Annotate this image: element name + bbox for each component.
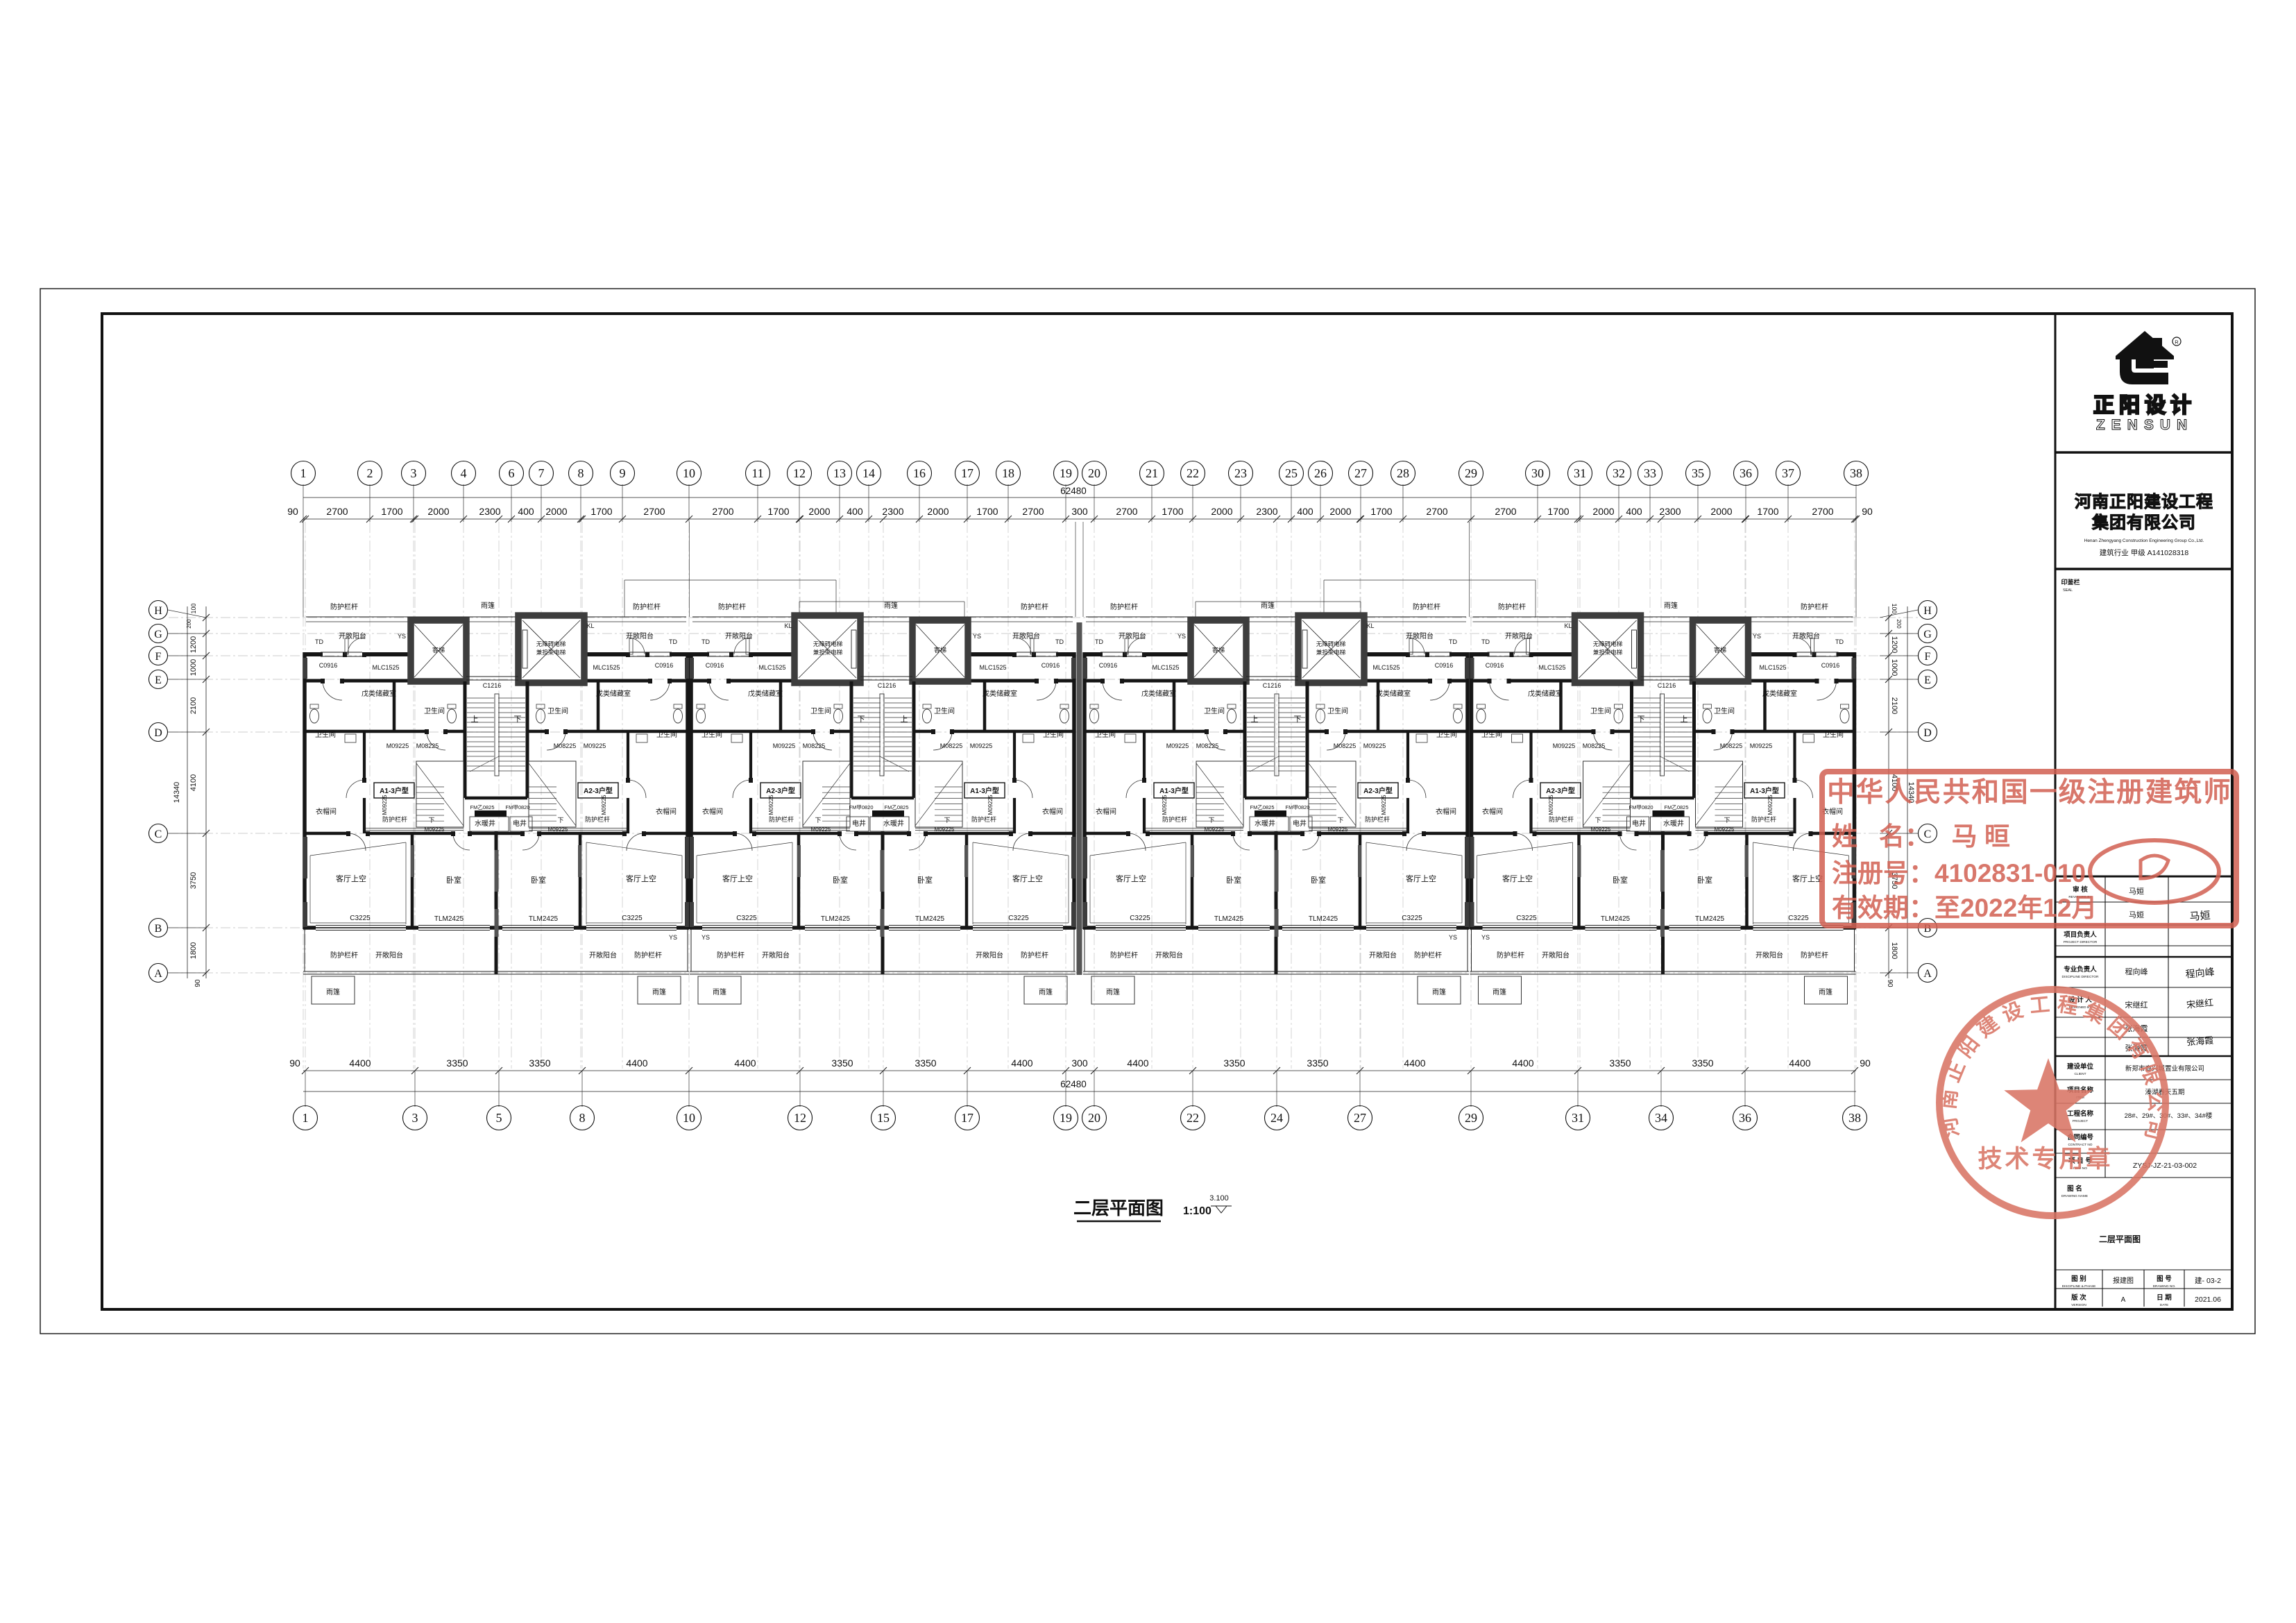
svg-text:35: 35	[1692, 466, 1704, 480]
svg-text:9: 9	[620, 466, 626, 480]
svg-text:4400: 4400	[734, 1057, 756, 1069]
svg-text:3350: 3350	[529, 1057, 550, 1069]
svg-text:水暖井: 水暖井	[1255, 819, 1275, 828]
svg-text:下: 下	[944, 817, 950, 824]
svg-text:32: 32	[1613, 466, 1625, 480]
svg-text:工程名称: 工程名称	[2067, 1110, 2094, 1118]
svg-text:卧室: 卧室	[1311, 875, 1326, 885]
svg-text:雨篷: 雨篷	[652, 987, 666, 996]
svg-text:ZENSUN: ZENSUN	[2096, 417, 2193, 433]
svg-text:兼担架电梯: 兼担架电梯	[536, 649, 566, 656]
svg-text:C3225: C3225	[1130, 915, 1150, 922]
svg-text:1700: 1700	[590, 506, 612, 517]
svg-text:8: 8	[578, 466, 584, 480]
svg-text:YS: YS	[701, 934, 710, 941]
svg-text:2: 2	[367, 466, 373, 480]
svg-text:下: 下	[1337, 817, 1343, 824]
svg-text:MLC1525: MLC1525	[758, 664, 785, 671]
svg-text:1000: 1000	[189, 659, 198, 676]
svg-text:有效期：至2022年12月: 有效期：至2022年12月	[1832, 894, 2097, 922]
svg-text:1000: 1000	[1890, 659, 1898, 676]
svg-text:TLM2425: TLM2425	[915, 915, 945, 923]
svg-text:62480: 62480	[1060, 1079, 1087, 1089]
svg-text:M09225: M09225	[1767, 794, 1774, 815]
svg-text:FM甲0820: FM甲0820	[505, 804, 529, 810]
svg-text:C0916: C0916	[1435, 662, 1454, 669]
svg-text:无障碍电梯: 无障碍电梯	[813, 640, 843, 647]
svg-text:2700: 2700	[1426, 506, 1447, 517]
svg-text:18: 18	[1002, 466, 1014, 480]
svg-text:防护栏杆: 防护栏杆	[1110, 602, 1138, 611]
svg-text:F: F	[155, 651, 162, 663]
svg-text:C3225: C3225	[1402, 915, 1422, 922]
svg-text:4400: 4400	[349, 1057, 371, 1069]
svg-text:2000: 2000	[1710, 506, 1732, 517]
svg-text:技术专用章: 技术专用章	[1978, 1145, 2113, 1173]
svg-text:4400: 4400	[1789, 1057, 1810, 1069]
svg-text:1700: 1700	[1757, 506, 1778, 517]
svg-text:M09225: M09225	[811, 826, 831, 833]
svg-text:A2-3户型: A2-3户型	[1363, 786, 1393, 795]
svg-text:卧室: 卧室	[917, 875, 933, 885]
svg-text:Henan Zhengyang Construction E: Henan Zhengyang Construction Engineering…	[2084, 538, 2204, 543]
svg-text:M09225: M09225	[425, 826, 445, 833]
svg-text:衣帽间: 衣帽间	[1822, 807, 1843, 816]
svg-text:防护栏杆: 防护栏杆	[769, 815, 794, 823]
svg-text:卫生间: 卫生间	[656, 730, 677, 739]
svg-text:衣帽间: 衣帽间	[1096, 807, 1116, 816]
svg-text:M09225: M09225	[601, 794, 607, 815]
svg-text:5: 5	[496, 1111, 502, 1125]
svg-text:2000: 2000	[427, 506, 449, 517]
svg-text:62480: 62480	[1060, 486, 1087, 496]
svg-text:防护栏杆: 防护栏杆	[1497, 951, 1524, 960]
svg-text:22: 22	[1187, 466, 1199, 480]
svg-text:M09225: M09225	[970, 742, 993, 749]
svg-text:防护栏杆: 防护栏杆	[585, 815, 610, 823]
svg-text:戊类储藏室: 戊类储藏室	[596, 689, 631, 698]
svg-text:M09225: M09225	[548, 826, 568, 833]
svg-text:2700: 2700	[1022, 506, 1044, 517]
svg-text:2300: 2300	[1256, 506, 1277, 517]
svg-text:卫生间: 卫生间	[934, 706, 955, 715]
svg-text:TD: TD	[669, 638, 677, 645]
svg-text:图 号: 图 号	[2157, 1275, 2172, 1283]
svg-text:C3225: C3225	[736, 915, 757, 922]
svg-text:客厅上空: 客厅上空	[626, 874, 656, 883]
svg-text:雨篷: 雨篷	[884, 601, 898, 610]
svg-text:400: 400	[1626, 506, 1642, 517]
svg-text:电井: 电井	[513, 819, 527, 828]
svg-text:开敞阳台: 开敞阳台	[1369, 951, 1397, 960]
svg-text:防护栏杆: 防护栏杆	[330, 951, 358, 960]
svg-text:25: 25	[1285, 466, 1298, 480]
svg-text:开敞阳台: 开敞阳台	[1755, 951, 1783, 960]
svg-text:FM乙0825: FM乙0825	[1664, 804, 1688, 810]
svg-text:12: 12	[794, 1111, 806, 1125]
svg-text:防护栏杆: 防护栏杆	[1801, 602, 1828, 611]
svg-text:22: 22	[1187, 1111, 1199, 1125]
svg-text:21: 21	[1146, 466, 1158, 480]
svg-text:R: R	[2175, 339, 2179, 346]
svg-text:1200: 1200	[189, 636, 198, 653]
svg-text:38: 38	[1850, 466, 1862, 480]
svg-text:8: 8	[579, 1111, 586, 1125]
svg-text:客厅上空: 客厅上空	[1792, 874, 1823, 883]
svg-text:3750: 3750	[189, 872, 198, 889]
svg-text:1200: 1200	[1890, 636, 1898, 653]
svg-text:卫生间: 卫生间	[1043, 730, 1064, 739]
svg-text:图 名: 图 名	[2067, 1184, 2082, 1193]
svg-text:36: 36	[1739, 1111, 1751, 1125]
svg-text:M09225: M09225	[1166, 742, 1189, 749]
svg-text:MLC1525: MLC1525	[593, 664, 620, 671]
svg-text:FM甲0820: FM甲0820	[1285, 804, 1309, 810]
svg-text:1700: 1700	[767, 506, 789, 517]
svg-text:YS: YS	[1449, 934, 1457, 941]
svg-text:C3225: C3225	[350, 915, 371, 922]
svg-text:90: 90	[289, 1057, 300, 1069]
svg-text:2300: 2300	[882, 506, 903, 517]
svg-text:防护栏杆: 防护栏杆	[634, 951, 662, 960]
svg-text:下: 下	[1208, 817, 1214, 824]
svg-text:雨篷: 雨篷	[481, 601, 495, 610]
svg-text:开敞阳台: 开敞阳台	[976, 951, 1003, 960]
svg-text:TD: TD	[1095, 638, 1103, 645]
svg-text:FM甲0820: FM甲0820	[1629, 804, 1653, 810]
svg-text:M08225: M08225	[940, 742, 963, 749]
svg-text:SEAL: SEAL	[2063, 588, 2073, 593]
svg-text:程向峰: 程向峰	[2125, 967, 2148, 976]
svg-text:KL: KL	[1564, 622, 1572, 629]
svg-text:开敞阳台: 开敞阳台	[626, 631, 654, 640]
svg-text:C0916: C0916	[1099, 662, 1118, 669]
svg-text:C3225: C3225	[1788, 915, 1809, 922]
svg-text:开敞阳台: 开敞阳台	[762, 951, 790, 960]
svg-text:报建图: 报建图	[2113, 1276, 2134, 1285]
svg-text:雨篷: 雨篷	[1664, 601, 1678, 610]
svg-text:27: 27	[1354, 1111, 1366, 1125]
svg-text:雨篷: 雨篷	[1106, 987, 1120, 996]
svg-text:戊类储藏室: 戊类储藏室	[748, 689, 783, 698]
svg-text:M09225: M09225	[1591, 826, 1611, 833]
svg-text:衣帽间: 衣帽间	[316, 807, 337, 816]
svg-text:36: 36	[1740, 466, 1752, 480]
svg-text:卫生间: 卫生间	[1204, 706, 1225, 715]
svg-text:23: 23	[1234, 466, 1247, 480]
svg-text:27: 27	[1354, 466, 1367, 480]
svg-text:TLM2425: TLM2425	[1214, 915, 1244, 923]
svg-text:雨篷: 雨篷	[1432, 987, 1446, 996]
svg-text:G: G	[154, 629, 162, 640]
svg-text:A1-3户型: A1-3户型	[1750, 786, 1779, 795]
svg-text:M09225: M09225	[1363, 742, 1386, 749]
svg-text:90: 90	[287, 506, 298, 517]
svg-text:开敞阳台: 开敞阳台	[375, 951, 403, 960]
svg-text:2700: 2700	[712, 506, 733, 517]
svg-text:衣帽间: 衣帽间	[1042, 807, 1063, 816]
svg-text:电井: 电井	[1632, 819, 1646, 828]
svg-text:兼担架电梯: 兼担架电梯	[813, 649, 843, 656]
svg-text:M09225: M09225	[768, 794, 774, 815]
svg-text:4400: 4400	[626, 1057, 647, 1069]
svg-text:DATE: DATE	[2160, 1303, 2168, 1307]
svg-text:衣帽间: 衣帽间	[656, 807, 677, 816]
svg-text:二层平面图: 二层平面图	[1073, 1198, 1164, 1218]
svg-text:下: 下	[1638, 715, 1645, 724]
svg-text:3350: 3350	[915, 1057, 936, 1069]
svg-text:1700: 1700	[1162, 506, 1183, 517]
svg-text:2300: 2300	[479, 506, 500, 517]
svg-text:防护栏杆: 防护栏杆	[718, 602, 746, 611]
svg-text:TD: TD	[315, 638, 323, 645]
svg-text:兼担架电梯: 兼担架电梯	[1316, 649, 1346, 656]
svg-text:D: D	[1923, 727, 1932, 739]
svg-text:卫生间: 卫生间	[1095, 730, 1116, 739]
svg-text:开敞阳台: 开敞阳台	[1155, 951, 1183, 960]
svg-text:TD: TD	[1449, 638, 1457, 645]
svg-text:90: 90	[194, 979, 202, 987]
svg-text:卧室: 卧室	[1613, 875, 1628, 885]
svg-text:M09225: M09225	[935, 826, 955, 833]
svg-text:M09225: M09225	[386, 742, 409, 749]
svg-text:防护栏杆: 防护栏杆	[1021, 951, 1048, 960]
svg-text:卫生间: 卫生间	[810, 706, 831, 715]
svg-text:TD: TD	[1055, 638, 1064, 645]
svg-text:3: 3	[411, 466, 417, 480]
svg-text:开敞阳台: 开敞阳台	[1012, 631, 1040, 640]
svg-text:1: 1	[300, 466, 307, 480]
svg-text:戊类储藏室: 戊类储藏室	[1376, 689, 1411, 698]
svg-text:1700: 1700	[1547, 506, 1569, 517]
svg-text:开敞阳台: 开敞阳台	[589, 951, 617, 960]
svg-text:C1216: C1216	[483, 682, 502, 689]
svg-text:A2-3户型: A2-3户型	[584, 786, 613, 795]
svg-text:A1-3户型: A1-3户型	[1159, 786, 1189, 795]
svg-text:防护栏杆: 防护栏杆	[1162, 815, 1187, 823]
svg-text:版 次: 版 次	[2070, 1293, 2086, 1302]
svg-text:开敞阳台: 开敞阳台	[1542, 951, 1570, 960]
svg-text:3350: 3350	[1609, 1057, 1631, 1069]
svg-text:2700: 2700	[1495, 506, 1516, 517]
svg-text:M09225: M09225	[1381, 794, 1387, 815]
svg-text:M09225: M09225	[1548, 794, 1554, 815]
svg-text:防护栏杆: 防护栏杆	[1751, 815, 1776, 823]
svg-text:正阳设计: 正阳设计	[2093, 394, 2196, 417]
svg-text:马姮: 马姮	[2129, 910, 2144, 919]
svg-text:雨篷: 雨篷	[1261, 601, 1275, 610]
svg-text:客梯: 客梯	[934, 646, 946, 654]
svg-text:2700: 2700	[643, 506, 665, 517]
svg-text:防护栏杆: 防护栏杆	[330, 602, 358, 611]
svg-text:TLM2425: TLM2425	[529, 915, 559, 923]
svg-text:TD: TD	[1481, 638, 1490, 645]
svg-text:FM乙0825: FM乙0825	[884, 804, 908, 810]
svg-text:防护栏杆: 防护栏杆	[1365, 815, 1390, 823]
svg-text:客厅上空: 客厅上空	[722, 874, 753, 883]
svg-text:19: 19	[1060, 466, 1072, 480]
svg-text:M09225: M09225	[987, 794, 994, 815]
svg-text:15: 15	[877, 1111, 890, 1125]
svg-text:M09225: M09225	[382, 794, 388, 815]
svg-text:MLC1525: MLC1525	[372, 664, 399, 671]
svg-text:防护栏杆: 防护栏杆	[1110, 951, 1138, 960]
svg-text:1800: 1800	[189, 942, 198, 959]
svg-text:PROJECT DIRECTOR: PROJECT DIRECTOR	[2064, 940, 2098, 944]
svg-text:2000: 2000	[1592, 506, 1614, 517]
svg-text:建- 03-2: 建- 03-2	[2195, 1276, 2221, 1285]
svg-text:无障碍电梯: 无障碍电梯	[1316, 640, 1346, 647]
svg-text:宋继红: 宋继红	[2125, 1000, 2148, 1010]
svg-text:3350: 3350	[831, 1057, 853, 1069]
svg-text:卫生间: 卫生间	[315, 730, 336, 739]
svg-text:E: E	[155, 674, 162, 686]
svg-text:C3225: C3225	[622, 915, 643, 922]
svg-text:开敞阳台: 开敞阳台	[725, 631, 753, 640]
svg-text:H: H	[1923, 605, 1932, 617]
svg-text:M09225: M09225	[1328, 826, 1348, 833]
svg-text:客梯: 客梯	[1714, 646, 1726, 654]
svg-text:上: 上	[471, 715, 479, 724]
svg-text:雨篷: 雨篷	[713, 987, 726, 996]
svg-text:A1-3户型: A1-3户型	[970, 786, 999, 795]
svg-text:戊类储藏室: 戊类储藏室	[1528, 689, 1563, 698]
svg-text:4400: 4400	[1404, 1057, 1425, 1069]
svg-text:PROJECT: PROJECT	[2073, 1119, 2088, 1123]
svg-text:11: 11	[751, 466, 763, 480]
svg-text:兼担架电梯: 兼担架电梯	[1593, 649, 1623, 656]
svg-text:YS: YS	[973, 633, 981, 640]
svg-text:20: 20	[1088, 466, 1100, 480]
svg-text:10: 10	[683, 466, 695, 480]
svg-text:C0916: C0916	[655, 662, 674, 669]
svg-text:17: 17	[961, 1111, 973, 1125]
svg-text:下: 下	[815, 817, 821, 824]
svg-text:卧室: 卧室	[833, 875, 848, 885]
svg-text:A1-3户型: A1-3户型	[380, 786, 409, 795]
svg-text:4400: 4400	[1011, 1057, 1032, 1069]
svg-text:卫生间: 卫生间	[701, 730, 722, 739]
svg-text:戊类储藏室: 戊类储藏室	[983, 689, 1017, 698]
svg-text:戊类储藏室: 戊类储藏室	[362, 689, 396, 698]
svg-text:C0916: C0916	[706, 662, 724, 669]
svg-text:TLM2425: TLM2425	[1695, 915, 1725, 923]
svg-text:TLM2425: TLM2425	[1309, 915, 1338, 923]
svg-text:M09225: M09225	[773, 742, 796, 749]
svg-text:FM乙0825: FM乙0825	[470, 804, 494, 810]
svg-text:M08225: M08225	[1583, 742, 1606, 749]
svg-text:2700: 2700	[326, 506, 348, 517]
svg-text:卫生间: 卫生间	[1823, 730, 1844, 739]
svg-text:A: A	[154, 968, 162, 980]
svg-text:B: B	[155, 923, 162, 935]
svg-text:M08225: M08225	[1196, 742, 1219, 749]
svg-text:1700: 1700	[976, 506, 998, 517]
svg-text:H: H	[154, 605, 162, 617]
svg-text:防护栏杆: 防护栏杆	[717, 951, 745, 960]
svg-text:400: 400	[518, 506, 534, 517]
svg-text:水暖井: 水暖井	[475, 819, 495, 828]
svg-text:上: 上	[901, 715, 908, 724]
svg-text:A2-3户型: A2-3户型	[1546, 786, 1575, 795]
svg-text:3350: 3350	[1307, 1057, 1328, 1069]
svg-text:19: 19	[1060, 1111, 1072, 1125]
svg-text:日 期: 日 期	[2157, 1293, 2172, 1302]
svg-text:客厅上空: 客厅上空	[1502, 874, 1533, 883]
svg-text:专业负责人: 专业负责人	[2064, 965, 2097, 974]
svg-text:13: 13	[833, 466, 846, 480]
svg-text:YS: YS	[1753, 633, 1761, 640]
svg-text:MLC1525: MLC1525	[1152, 664, 1179, 671]
svg-text:卫生间: 卫生间	[547, 706, 568, 715]
svg-text:M08225: M08225	[1720, 742, 1743, 749]
svg-text:A: A	[1923, 968, 1932, 980]
svg-text:VERSION: VERSION	[2071, 1303, 2086, 1307]
svg-text:1800: 1800	[1890, 942, 1898, 959]
svg-text:34: 34	[1655, 1111, 1667, 1125]
svg-text:28: 28	[1397, 466, 1409, 480]
svg-text:二层平面图: 二层平面图	[2099, 1234, 2141, 1244]
svg-text:C: C	[155, 829, 162, 840]
svg-text:10: 10	[683, 1111, 695, 1125]
svg-text:C1216: C1216	[1263, 682, 1282, 689]
svg-text:戊类储藏室: 戊类储藏室	[1141, 689, 1176, 698]
svg-text:下: 下	[557, 817, 563, 824]
svg-text:100: 100	[1891, 603, 1898, 613]
svg-text:4400: 4400	[1127, 1057, 1148, 1069]
svg-text:2000: 2000	[1329, 506, 1351, 517]
svg-text:上: 上	[1251, 715, 1259, 724]
svg-text:M08225: M08225	[803, 742, 826, 749]
svg-text:卫生间: 卫生间	[1481, 730, 1502, 739]
svg-text:14: 14	[862, 466, 875, 480]
svg-text:G: G	[1923, 629, 1932, 640]
svg-text:4100: 4100	[189, 774, 198, 791]
svg-text:客厅上空: 客厅上空	[1116, 874, 1146, 883]
svg-text:E: E	[1924, 674, 1931, 686]
svg-text:M08225: M08225	[416, 742, 439, 749]
svg-text:卧室: 卧室	[1226, 875, 1241, 885]
svg-text:姓 名： 马 晅: 姓 名： 马 晅	[1832, 822, 2010, 851]
svg-text:TD: TD	[1835, 638, 1844, 645]
svg-text:M09225: M09225	[1750, 742, 1773, 749]
svg-text:防护栏杆: 防护栏杆	[971, 815, 996, 823]
svg-text:下: 下	[1724, 817, 1730, 824]
svg-text:防护栏杆: 防护栏杆	[633, 602, 661, 611]
svg-text:200: 200	[186, 619, 192, 629]
svg-text:2300: 2300	[1659, 506, 1681, 517]
svg-text:客厅上空: 客厅上空	[1406, 874, 1436, 883]
svg-text:TLM2425: TLM2425	[1601, 915, 1631, 923]
svg-text:2000: 2000	[1211, 506, 1232, 517]
svg-text:防护栏杆: 防护栏杆	[1413, 602, 1440, 611]
svg-text:DRAWING NAME: DRAWING NAME	[2061, 1194, 2088, 1198]
svg-text:上: 上	[1681, 715, 1688, 724]
svg-text:卫生间: 卫生间	[424, 706, 445, 715]
svg-text:电井: 电井	[1293, 819, 1307, 828]
svg-text:M09225: M09225	[1162, 794, 1168, 815]
svg-text:1700: 1700	[381, 506, 402, 517]
svg-text:2100: 2100	[1890, 697, 1898, 714]
svg-text:1700: 1700	[1370, 506, 1392, 517]
svg-text:6: 6	[509, 466, 515, 480]
svg-text:4400: 4400	[1512, 1057, 1533, 1069]
svg-text:防护栏杆: 防护栏杆	[1021, 602, 1048, 611]
svg-text:马姮: 马姮	[2129, 886, 2144, 896]
svg-text:开敞阳台: 开敞阳台	[1406, 631, 1434, 640]
svg-text:KL: KL	[586, 622, 594, 629]
svg-text:开敞阳台: 开敞阳台	[339, 631, 366, 640]
